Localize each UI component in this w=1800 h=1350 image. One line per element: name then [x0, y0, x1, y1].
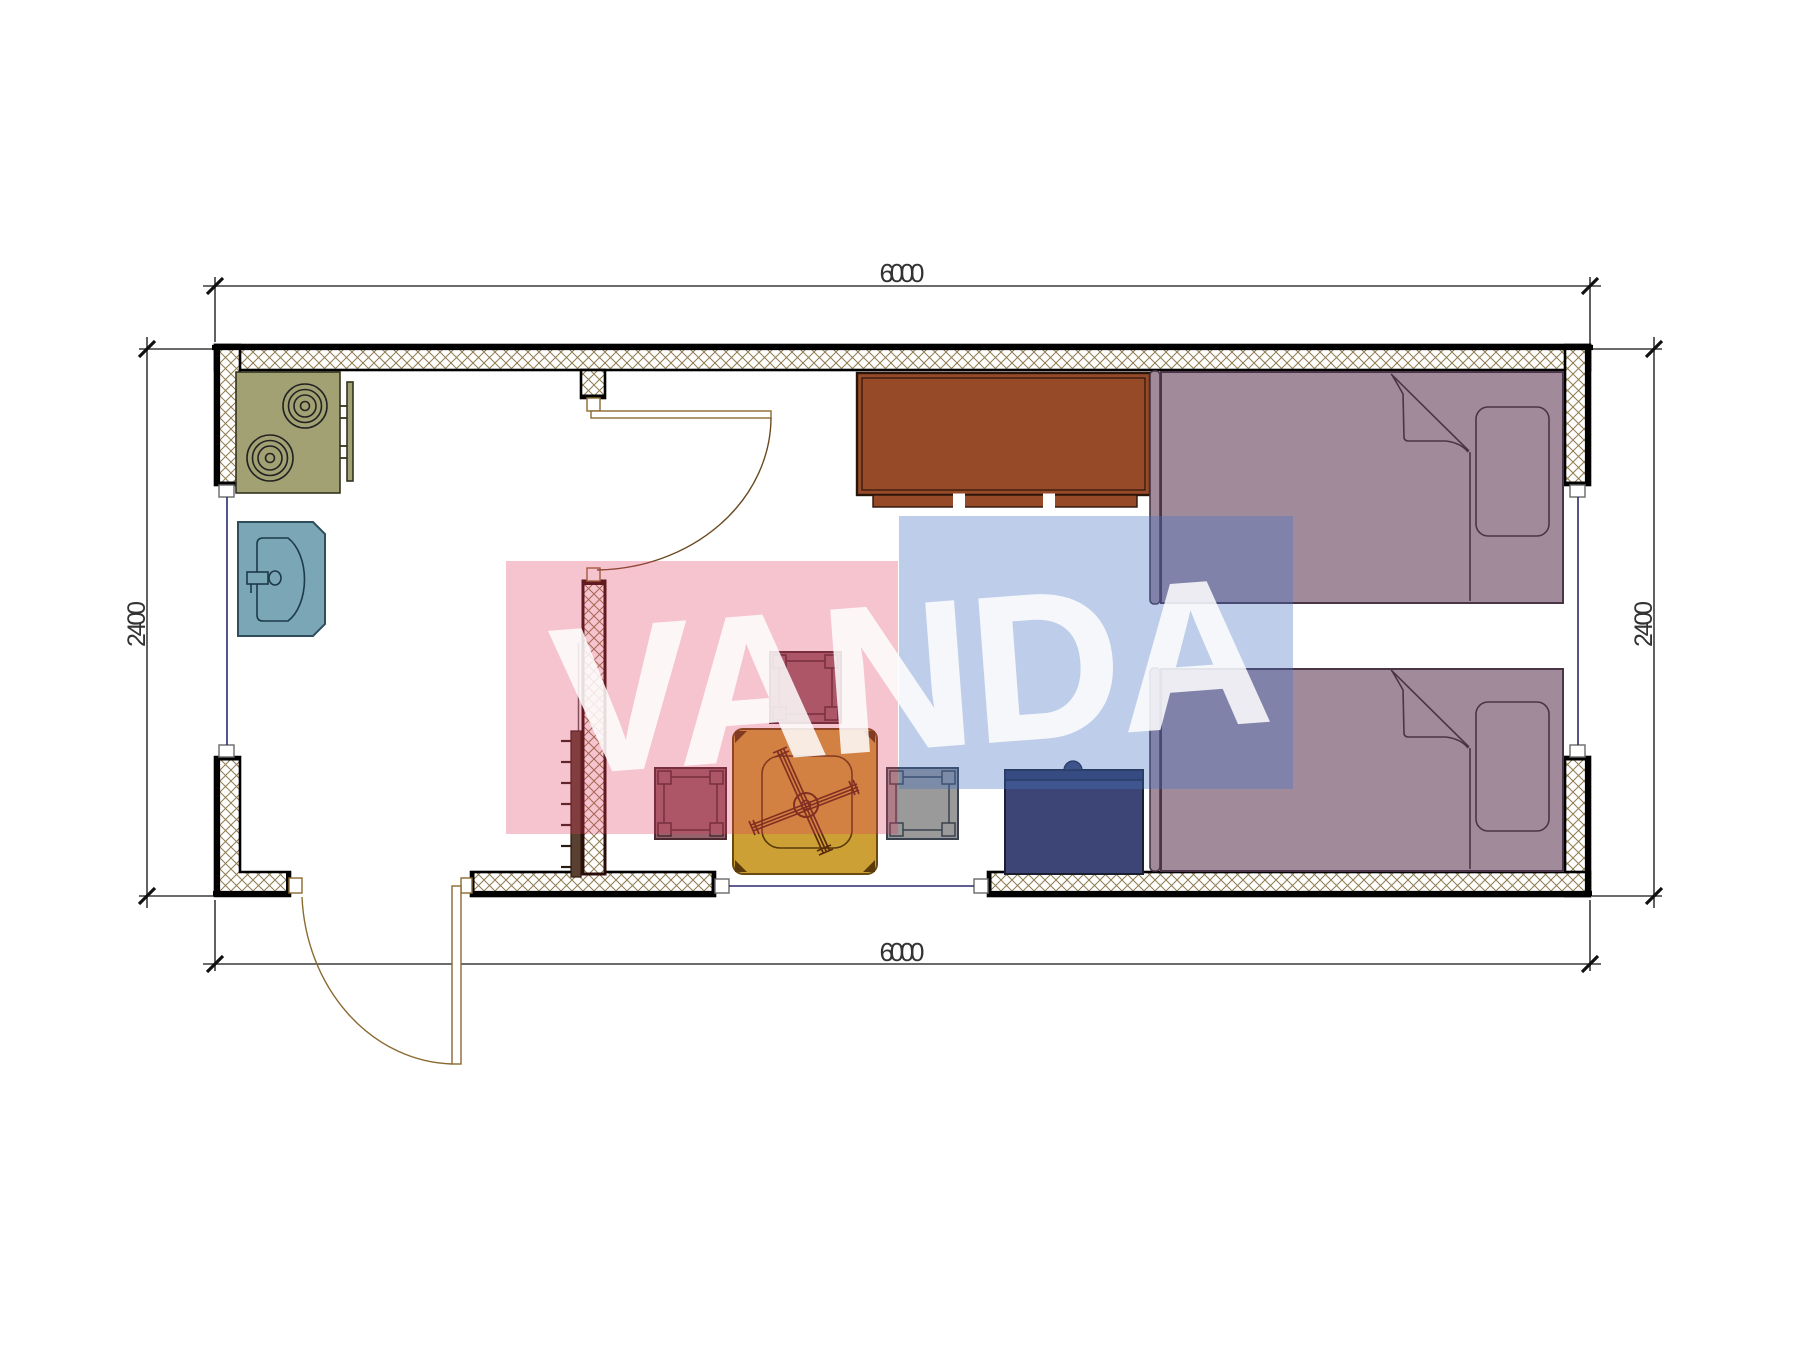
svg-text:2400: 2400 [1630, 601, 1658, 647]
svg-text:6000: 6000 [880, 937, 925, 967]
svg-text:2400: 2400 [123, 601, 151, 647]
svg-text:6000: 6000 [880, 258, 925, 288]
